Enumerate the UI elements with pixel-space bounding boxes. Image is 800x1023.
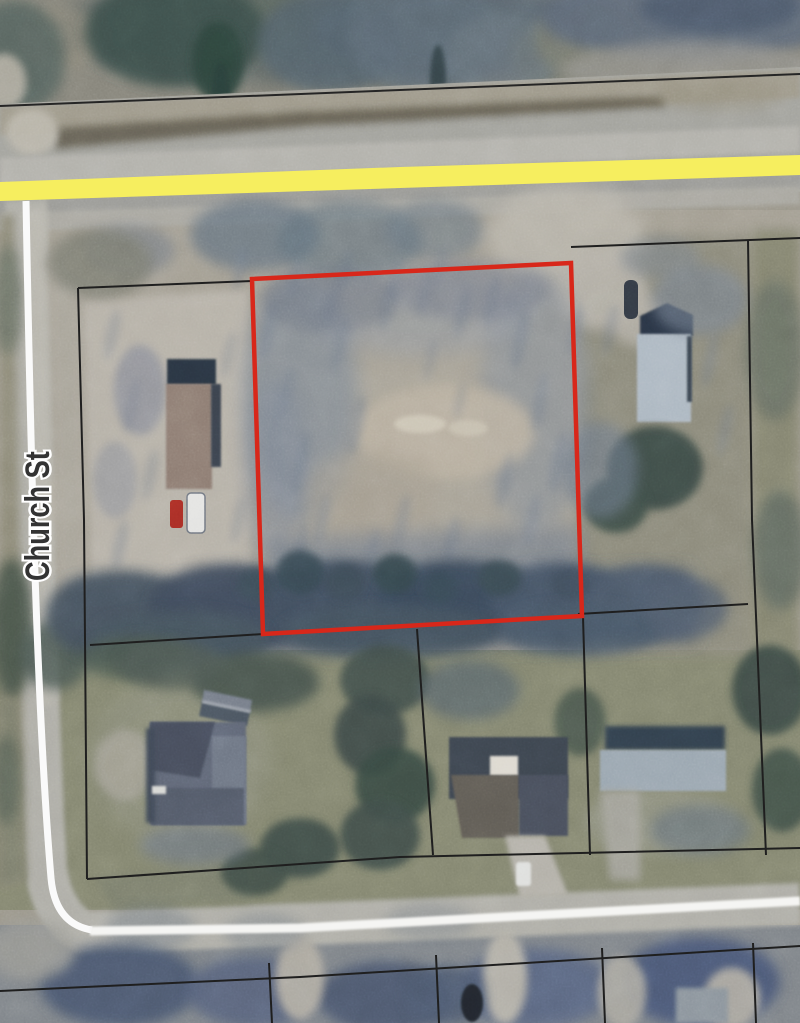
svg-text:Church St: Church St [18, 451, 57, 581]
